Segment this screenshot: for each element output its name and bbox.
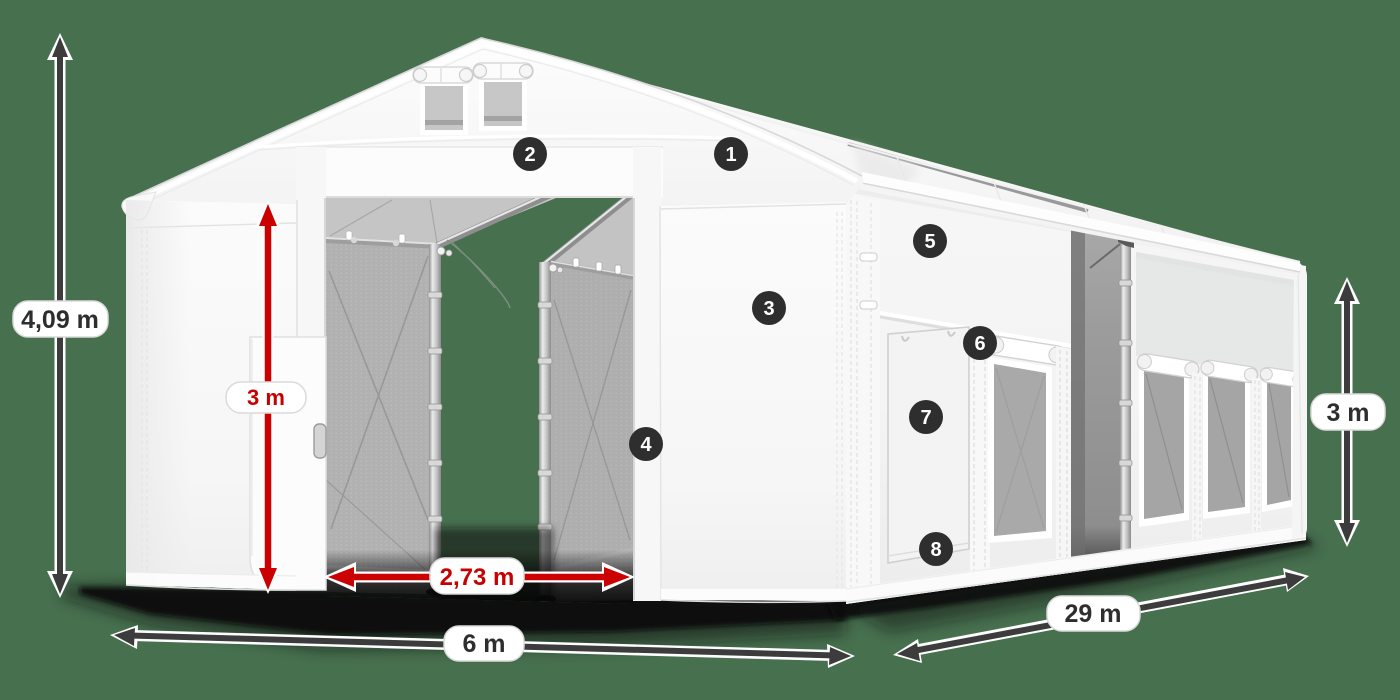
svg-text:2: 2 <box>524 144 535 166</box>
svg-text:1: 1 <box>725 144 736 166</box>
svg-text:29 m: 29 m <box>1065 600 1122 628</box>
svg-text:6: 6 <box>974 333 985 355</box>
svg-text:5: 5 <box>924 231 935 253</box>
svg-text:3: 3 <box>763 298 774 320</box>
svg-text:8: 8 <box>930 539 941 561</box>
svg-text:4,09 m: 4,09 m <box>21 306 99 334</box>
svg-text:3 m: 3 m <box>247 385 285 410</box>
svg-text:3 m: 3 m <box>1326 399 1369 427</box>
svg-text:2,73 m: 2,73 m <box>440 564 515 591</box>
svg-text:6 m: 6 m <box>462 630 505 658</box>
svg-text:4: 4 <box>640 434 652 456</box>
svg-text:7: 7 <box>920 407 931 429</box>
